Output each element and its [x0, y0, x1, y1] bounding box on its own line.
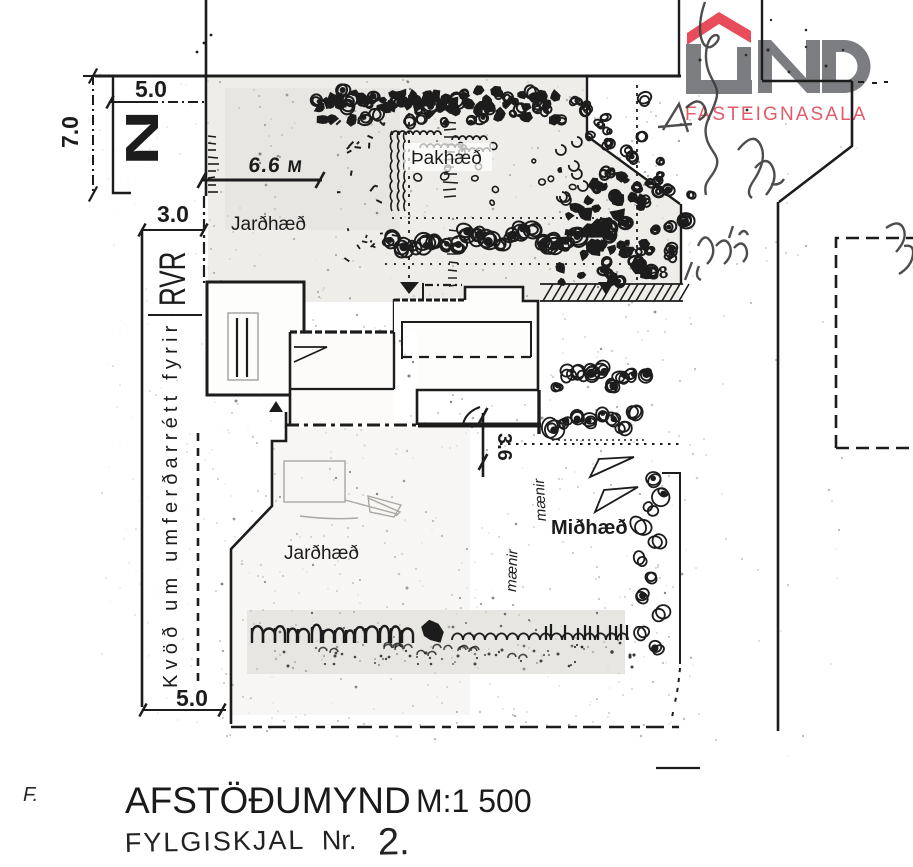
svg-text:FYLGISKJAL: FYLGISKJAL: [125, 825, 306, 858]
svg-text:Miðhæð: Miðhæð: [551, 517, 628, 539]
svg-text:7.0: 7.0: [57, 116, 83, 148]
svg-text:3.6: 3.6: [493, 433, 515, 461]
svg-text:3.0: 3.0: [157, 201, 189, 227]
svg-text:M:1 500: M:1 500: [416, 783, 532, 819]
svg-text:Nr.: Nr.: [322, 825, 357, 856]
svg-text:N: N: [116, 110, 168, 166]
svg-text:AFSTÖÐUMYND: AFSTÖÐUMYND: [125, 780, 411, 821]
svg-text:2.: 2.: [378, 821, 410, 864]
svg-text:58: 58: [648, 263, 669, 284]
svg-text:Kvöð um umferðarrétt fyrir: Kvöð um umferðarrétt fyrir: [160, 321, 182, 689]
svg-text:mænir: mænir: [531, 477, 550, 521]
svg-text:Jarðhæð: Jarðhæð: [284, 543, 359, 564]
svg-text:RVR: RVR: [151, 252, 193, 306]
svg-text:5.0: 5.0: [135, 76, 167, 102]
svg-text:Þakhæð: Þakhæð: [411, 148, 482, 169]
svg-text:Jarðhæð: Jarðhæð: [231, 214, 306, 235]
svg-text:F.: F.: [23, 784, 38, 806]
svg-text:mænir: mænir: [503, 548, 522, 592]
svg-text:6.6 M: 6.6 M: [247, 154, 304, 177]
